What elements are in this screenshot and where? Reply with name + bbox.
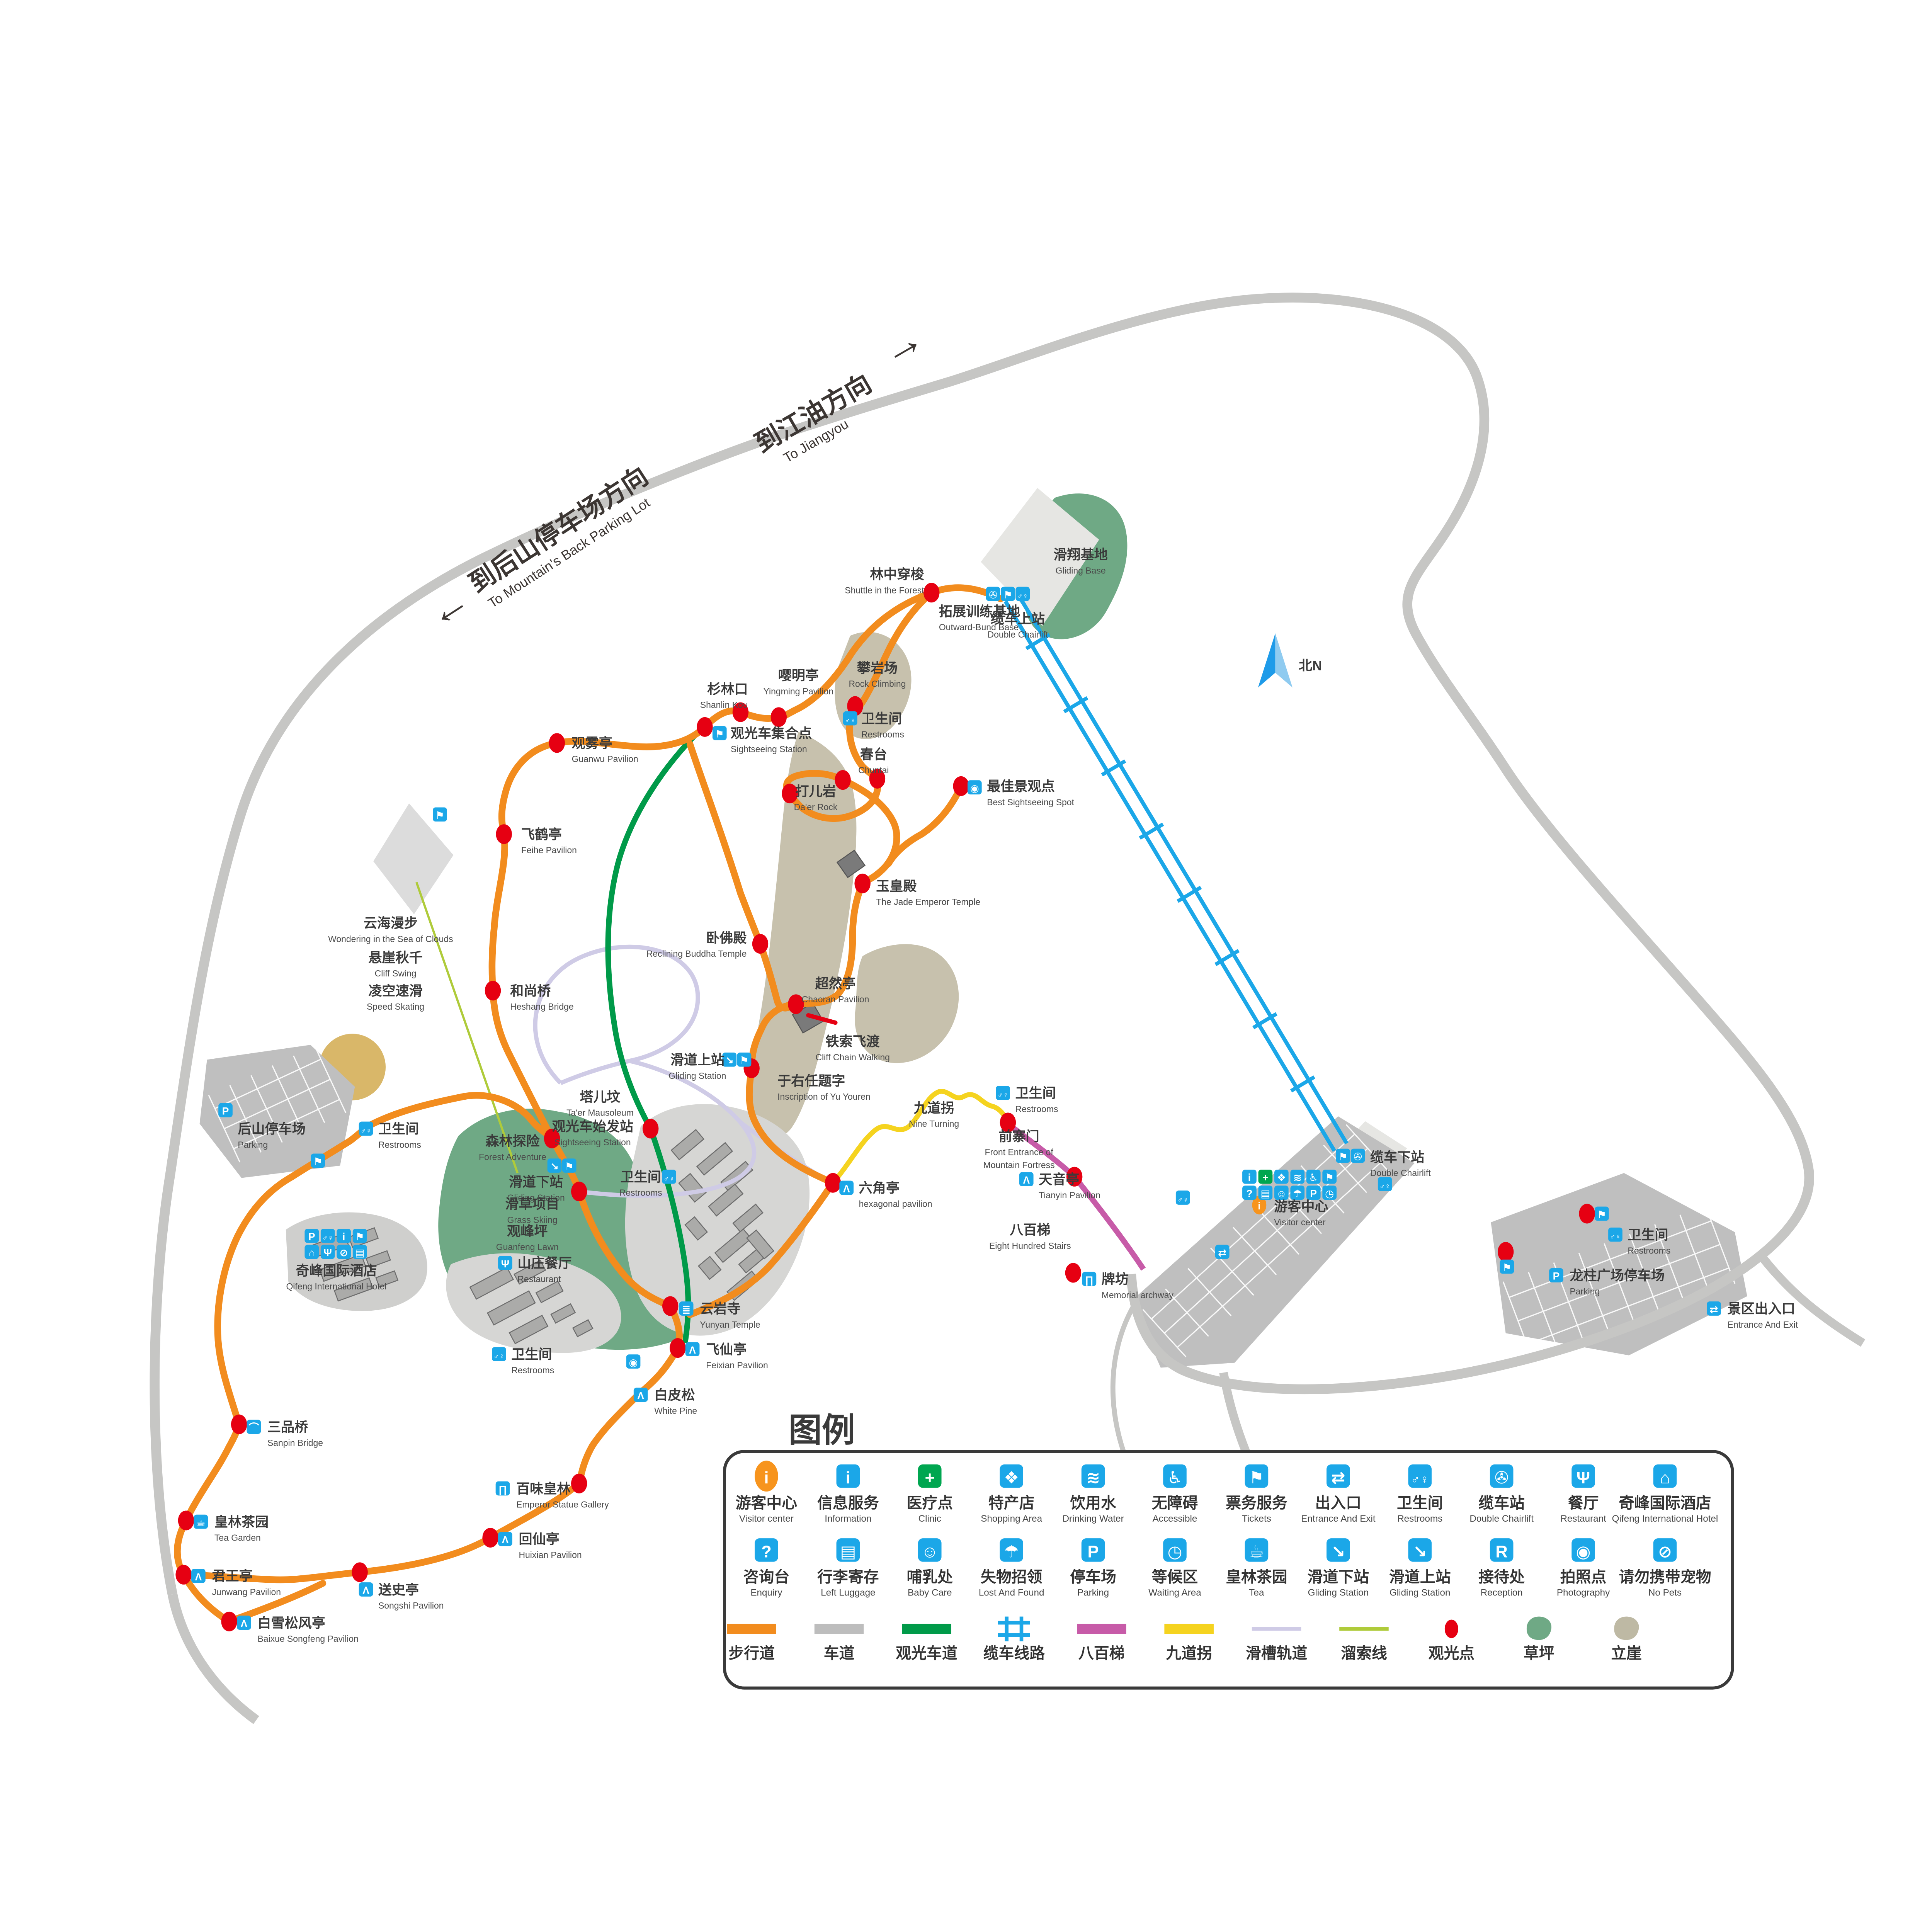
poi-zh-label: 缆车下站 xyxy=(1370,1150,1424,1165)
poi-en-label: The Jade Emperor Temple xyxy=(876,897,980,907)
enquiry-glyph: ? xyxy=(761,1543,772,1561)
poi-en-label: Nine Turning xyxy=(909,1119,959,1129)
poi-zh-label: 打儿岩 xyxy=(795,784,836,799)
poi-en-label: Sanpin Bridge xyxy=(267,1438,323,1448)
information-icon: i xyxy=(337,1229,351,1243)
sightseeing-spot-dot xyxy=(175,1565,191,1585)
poi-zh-label: 百味皇林 xyxy=(516,1481,570,1497)
legend-facility-zh: 滑道上站 xyxy=(1389,1568,1451,1585)
exit-icon: ⇄ xyxy=(1327,1464,1350,1488)
sightseeing-glyph: ⚑ xyxy=(740,1055,749,1066)
entrance-branch-road xyxy=(1762,1257,1863,1343)
water-icon: ≋ xyxy=(1290,1170,1304,1184)
restaurant-icon: Ψ xyxy=(1571,1464,1595,1488)
poi-label: 游客中心Visitor center xyxy=(1274,1199,1328,1228)
restrooms-glyph: ♂♀ xyxy=(1610,1233,1621,1241)
reception-icon: R xyxy=(1490,1538,1514,1562)
poi-label: 玉皇殿The Jade Emperor Temple xyxy=(876,879,980,907)
legend-facility-zh: 哺乳处 xyxy=(906,1568,953,1585)
restrooms-glyph: ♂♀ xyxy=(1411,1472,1429,1486)
poi-en-label: Entrance And Exit xyxy=(1728,1320,1798,1330)
legend-facility-zh: 请勿携带宠物 xyxy=(1619,1568,1711,1585)
poi-zh-label: 奇峰国际酒店 xyxy=(296,1263,377,1278)
parking-icon: P xyxy=(218,1103,233,1117)
poi-zh-label: 后山停车场 xyxy=(238,1122,305,1137)
sightseeing-spot-dot xyxy=(752,934,768,954)
restrooms-icon: ♂♀ xyxy=(1408,1464,1432,1488)
poi-en-label: Parking xyxy=(1570,1286,1600,1296)
poi-en2-label: Mountain Fortress xyxy=(983,1160,1055,1170)
poi-en-label: Forest Adventure xyxy=(479,1152,546,1162)
baby-glyph: ☺ xyxy=(1276,1188,1287,1199)
luggage-icon: ▤ xyxy=(1259,1185,1273,1200)
pavilion-glyph: Λ xyxy=(502,1534,509,1546)
poi-en-label: Heshang Bridge xyxy=(510,1002,574,1012)
archway-glyph: ∏ xyxy=(498,1483,507,1495)
chairlift-glyph: ✇ xyxy=(1354,1151,1362,1162)
glide-glyph: ↘ xyxy=(1331,1543,1345,1561)
tickets-icon: ⚑ xyxy=(1500,1260,1514,1274)
poi-zh-label: 凌空速滑 xyxy=(368,984,422,999)
poi-en-label: Visitor center xyxy=(1274,1217,1326,1227)
legend-facility-zh: 信息服务 xyxy=(817,1495,879,1512)
legend-facility-en: Waiting Area xyxy=(1148,1587,1201,1598)
lostfound-icon: ☂ xyxy=(1000,1538,1023,1562)
poi-zh-label: 嘤明亭 xyxy=(778,668,819,683)
information-glyph: i xyxy=(846,1469,850,1487)
chairlift-icon: ✇ xyxy=(1490,1464,1514,1488)
chairlift-icon: ✇ xyxy=(1351,1149,1365,1163)
poi-en-label: Shuttle in the Forest xyxy=(845,585,924,595)
poi-en-label: Tianyin Pavilion xyxy=(1039,1190,1100,1200)
shopping-icon: ❖ xyxy=(1274,1170,1289,1184)
scenic-area-map: ✇⚑♂♀♂♀⚑◉↘⚑♂♀P♂♀Λ↘⚑Λ♂♀i⚑✇∏Ψ≣♂♀ΛΛ⌒∏☕ΛΛΛΛP♂… xyxy=(0,0,1932,1932)
restaurant-icon: Ψ xyxy=(498,1256,512,1270)
tickets-icon: ⚑ xyxy=(1322,1170,1337,1184)
poi-label: 观光车始发站Sightseeing Station xyxy=(552,1119,633,1147)
poi-zh-label: 前寨门 xyxy=(999,1129,1039,1144)
sightseeing-spot-dot xyxy=(571,1474,587,1493)
poi-en-label: Huixian Pavilion xyxy=(519,1550,582,1560)
legend-facility-en: Accessible xyxy=(1153,1514,1197,1524)
restrooms-glyph: ♂♀ xyxy=(1017,592,1028,600)
luggage-glyph: ▤ xyxy=(355,1247,365,1259)
poi-en-label: Qifeng International Hotel xyxy=(286,1281,386,1291)
legend-facility-en: Left Luggage xyxy=(821,1587,875,1598)
legend-line-zh: 车道 xyxy=(824,1645,855,1662)
sightseeing-spot-dot xyxy=(923,583,939,602)
luggage-icon: ▤ xyxy=(837,1538,860,1562)
poi-en-label: Da'er Rock xyxy=(794,802,838,812)
poi-zh-label: 六角亭 xyxy=(859,1181,900,1196)
sightseeing-spot-dot xyxy=(771,707,787,727)
archway-icon: ∏ xyxy=(496,1481,510,1496)
poi-label: 卫生间Restrooms xyxy=(1628,1228,1670,1256)
legend-facility-en: Restaurant xyxy=(1560,1514,1606,1524)
poi-label: 观雾亭Guanwu Pavilion xyxy=(572,736,638,764)
legend-facility-en: Baby Care xyxy=(908,1587,952,1598)
poi-zh-label: 超然亭 xyxy=(815,976,855,991)
poi-en-label: Tea Garden xyxy=(214,1533,261,1543)
poi-label: 百味皇林Emperor Statue Gallery xyxy=(516,1481,609,1510)
legend-line-zh: 观光车道 xyxy=(896,1645,957,1662)
accessible-icon: ♿ xyxy=(1306,1170,1321,1184)
legend-line-zh: 缆车线路 xyxy=(983,1645,1045,1662)
cable-car-line xyxy=(1005,594,1347,1151)
poi-zh-label: 八百梯 xyxy=(1010,1223,1050,1238)
legend-facility-zh: 皇林茶园 xyxy=(1226,1568,1287,1585)
poi-en-label: Parking xyxy=(238,1139,268,1150)
pavilion-glyph: Λ xyxy=(1023,1174,1030,1186)
poi-zh-label: 于右任题字 xyxy=(777,1073,845,1088)
walking-branch-bestspot xyxy=(888,786,961,864)
poi-zh-label: 滑道上站 xyxy=(670,1053,724,1068)
direction-back-parking-zh: 到后山停车场方向 xyxy=(464,461,653,599)
poi-en-label: Wondering in the Sea of Clouds xyxy=(328,934,453,944)
poi-en-label: Emperor Statue Gallery xyxy=(516,1499,609,1509)
information-icon: i xyxy=(837,1464,860,1488)
tickets-glyph: ⚑ xyxy=(1325,1172,1334,1184)
poi-zh-label: 游客中心 xyxy=(1274,1199,1328,1214)
legend-facility-zh: 拍照点 xyxy=(1560,1568,1607,1585)
poi-zh-label: 观雾亭 xyxy=(572,736,612,751)
sightseeing-glyph: ⚑ xyxy=(313,1156,323,1167)
sightseeing-spot-dot xyxy=(231,1415,247,1434)
luggage-glyph: ▤ xyxy=(1260,1188,1270,1199)
waiting-glyph: ◷ xyxy=(1325,1188,1334,1199)
pavilion-icon: Λ xyxy=(839,1181,854,1195)
restrooms-icon: ♂♀ xyxy=(996,1086,1010,1100)
legend: 图例 i游客中心Visitor centeri信息服务Information+医… xyxy=(724,1412,1732,1688)
parking-glyph: P xyxy=(1088,1543,1099,1561)
direction-back-parking: ← 到后山停车场方向 To Mountain’s Back Parking Lo… xyxy=(418,457,663,642)
legend-facility-zh: 卫生间 xyxy=(1397,1495,1443,1512)
legend-facility-zh: 票务服务 xyxy=(1226,1495,1287,1512)
poi-en-label: Feixian Pavilion xyxy=(706,1360,768,1370)
poi-zh-label: 悬崖秋千 xyxy=(368,950,422,965)
poi-label: 卫生间Restrooms xyxy=(1015,1086,1058,1114)
poi-label: 攀岩场Rock Climbing xyxy=(849,661,906,689)
poi-zh-label: 山庄餐厅 xyxy=(517,1256,571,1271)
legend-facility-en: Visitor center xyxy=(739,1514,794,1524)
poi-zh-label: 天音亭 xyxy=(1039,1172,1079,1187)
poi-label: 春台Chuntai xyxy=(858,747,889,775)
poi-en-label: Guanfeng Lawn xyxy=(496,1242,559,1252)
poi-label: 凌空速滑Speed Skating xyxy=(367,984,424,1012)
parking-icon: P xyxy=(304,1229,319,1243)
poi-zh-label: 三品桥 xyxy=(267,1420,308,1435)
poi-zh-label: 最佳景观点 xyxy=(987,779,1054,794)
restrooms-icon: ♂♀ xyxy=(1378,1177,1392,1191)
legend-line-zh: 滑槽轨道 xyxy=(1246,1645,1308,1662)
sightseeing-icon: ⚑ xyxy=(433,807,447,821)
clinic-icon: + xyxy=(1259,1170,1273,1184)
visitor-glyph: i xyxy=(1258,1200,1260,1212)
poi-en-label: Yingming Pavilion xyxy=(764,686,833,696)
nopets-icon: ⊘ xyxy=(1653,1538,1677,1562)
poi-zh-label: 君王亭 xyxy=(212,1569,252,1584)
sightseeing-glyph: ⚑ xyxy=(565,1161,574,1172)
baby-glyph: ☺ xyxy=(921,1543,939,1561)
tickets-glyph: ⚑ xyxy=(355,1231,364,1243)
poi-en-label: Outward-Bund Base xyxy=(939,622,1019,632)
restrooms-icon: ♂♀ xyxy=(1176,1190,1190,1205)
sightseeing-spot-dot xyxy=(835,770,850,790)
photo-glyph: ◉ xyxy=(629,1357,638,1368)
poi-label: 观光车集合点Sightseeing Station xyxy=(731,726,812,754)
poi-zh-label: 白皮松 xyxy=(654,1388,695,1403)
poi-en-label: Inscription of Yu Youren xyxy=(777,1092,871,1102)
temple-icon: ≣ xyxy=(679,1301,694,1316)
poi-label: 前寨门Front Entrance ofMountain Fortress xyxy=(983,1129,1055,1170)
restrooms-glyph: ♂♀ xyxy=(1177,1196,1189,1204)
restaurant-glyph: Ψ xyxy=(501,1258,509,1270)
poi-label: 滑翔基地Gliding Base xyxy=(1053,548,1107,576)
legend-facility-en: Restrooms xyxy=(1397,1514,1442,1524)
luggage-icon: ▤ xyxy=(353,1245,367,1259)
sightseeing-spot-dot xyxy=(178,1510,194,1530)
legend-facility-zh: 医疗点 xyxy=(906,1495,953,1512)
legend-facility-zh: 接待处 xyxy=(1478,1568,1525,1585)
poi-zh-label: 攀岩场 xyxy=(857,661,898,676)
poi-label: 卫生间Restrooms xyxy=(619,1170,662,1198)
legend-facility-en: Drinking Water xyxy=(1062,1514,1124,1524)
legend-facility-en: No Pets xyxy=(1648,1587,1682,1598)
water-icon: ≋ xyxy=(1082,1464,1105,1488)
poi-en-label: Rock Climbing xyxy=(849,679,906,689)
poi-en-label: Reclining Buddha Temple xyxy=(646,949,747,959)
lostfound-glyph: ☂ xyxy=(1004,1543,1019,1561)
poi-zh-label: 云海漫步 xyxy=(364,916,418,931)
poi-en-label: Double Chairlift xyxy=(1370,1168,1431,1178)
tea-glyph: ☕ xyxy=(196,1517,206,1529)
poi-label: 九道拐Nine Turning xyxy=(909,1100,959,1129)
poi-zh-label: 和尚桥 xyxy=(510,984,551,999)
legend-line-zh: 八百梯 xyxy=(1078,1645,1125,1662)
baby-icon: ☺ xyxy=(918,1538,942,1562)
legend-line-zh: 步行道 xyxy=(728,1645,775,1662)
pavilion-glyph: Λ xyxy=(843,1183,850,1194)
poi-label: 悬崖秋千Cliff Swing xyxy=(368,950,422,978)
legend-facility-en: Reception xyxy=(1481,1587,1523,1598)
poi-zh-label: 皇林茶园 xyxy=(214,1515,269,1530)
poi-label: 飞仙亭Feixian Pavilion xyxy=(706,1342,768,1370)
exit-icon: ⇄ xyxy=(1707,1301,1721,1316)
poi-zh-label: 林中穿梭 xyxy=(870,567,924,582)
sightseeing-spot-dot xyxy=(643,1119,658,1138)
cable-line-b xyxy=(1018,594,1347,1143)
restrooms-icon: ♂♀ xyxy=(359,1122,373,1136)
poi-zh-label: 飞鹤亭 xyxy=(521,827,562,842)
poi-en-label: Gliding Base xyxy=(1056,565,1106,575)
restrooms-glyph: ♂♀ xyxy=(493,1352,505,1361)
poi-zh-label: 卫生间 xyxy=(621,1170,661,1185)
restrooms-icon: ♂♀ xyxy=(492,1347,506,1361)
poi-en-label: Sightseeing Station xyxy=(554,1137,631,1147)
photo-glyph: ◉ xyxy=(1576,1543,1591,1561)
poi-zh-label: 塔儿坟 xyxy=(580,1090,620,1105)
north-compass: 北N xyxy=(1258,633,1322,687)
tea-icon: ☕ xyxy=(194,1515,208,1529)
clinic-glyph: + xyxy=(1262,1172,1268,1184)
legend-facility-en: Lost And Found xyxy=(979,1587,1044,1598)
poi-en-label: Restrooms xyxy=(378,1139,421,1150)
sightseeing-spot-dot xyxy=(549,733,565,753)
restrooms-icon: ♂♀ xyxy=(1608,1228,1622,1242)
poi-zh-label: 送史亭 xyxy=(378,1582,419,1597)
exit-glyph: ⇄ xyxy=(1331,1469,1345,1487)
parking-icon: P xyxy=(1306,1185,1321,1200)
poi-en-label: Cliff Swing xyxy=(375,968,417,978)
restrooms-glyph: ♂♀ xyxy=(361,1127,372,1135)
poi-label: 林中穿梭Shuttle in the Forest xyxy=(845,567,924,595)
enquiry-icon: ? xyxy=(755,1538,778,1562)
restaurant-icon: Ψ xyxy=(321,1245,335,1259)
poi-en-label: Junwang Pavilion xyxy=(212,1587,281,1597)
poi-zh-label: 滑道下站 xyxy=(509,1175,563,1190)
parking-glyph: P xyxy=(1310,1188,1317,1199)
temple-glyph: ≣ xyxy=(682,1304,690,1315)
sightseeing-icon: ⚑ xyxy=(311,1153,325,1168)
poi-zh-label: 卫生间 xyxy=(378,1122,419,1137)
information-glyph: i xyxy=(1248,1172,1251,1184)
shopping-glyph: ❖ xyxy=(1004,1469,1019,1487)
waiting-icon: ◷ xyxy=(1163,1538,1187,1562)
poi-en-label: Baixue Songfeng Pavilion xyxy=(257,1634,358,1644)
parking-glyph: P xyxy=(222,1105,229,1117)
poi-label: 景区出入口Entrance And Exit xyxy=(1728,1301,1798,1330)
legend-facility-zh: 等候区 xyxy=(1152,1568,1198,1585)
poi-en-label: Restrooms xyxy=(511,1365,554,1375)
photo-glyph: ◉ xyxy=(970,782,979,794)
waiting-icon: ◷ xyxy=(1322,1185,1337,1200)
clinic-icon: + xyxy=(918,1464,942,1488)
archway-glyph: ∏ xyxy=(1085,1274,1094,1286)
legend-facility-en: Shopping Area xyxy=(981,1514,1042,1524)
pavilion-icon: Λ xyxy=(237,1616,251,1630)
legend-line-zh: 溜索线 xyxy=(1341,1645,1387,1662)
poi-zh-label: 春台 xyxy=(860,747,887,762)
legend-facility-zh: 饮用水 xyxy=(1070,1495,1116,1512)
legend-facility-zh: 特产店 xyxy=(988,1495,1035,1512)
legend-line-zh: 九道拐 xyxy=(1166,1645,1212,1662)
pavilion-icon: Λ xyxy=(191,1569,206,1583)
poi-en-label: Restrooms xyxy=(619,1188,662,1198)
poi-label: 八百梯Eight Hundred Stairs xyxy=(989,1223,1071,1251)
poi-en-label: Restrooms xyxy=(1628,1246,1670,1256)
enquiry-icon: ? xyxy=(1242,1185,1257,1200)
nopets-glyph: ⊘ xyxy=(340,1247,348,1259)
restrooms-icon: ♂♀ xyxy=(1015,587,1030,601)
sightseeing-icon: ⚑ xyxy=(562,1158,577,1173)
poi-en-label: Restrooms xyxy=(861,729,904,739)
pavilion-icon: Λ xyxy=(1019,1172,1034,1186)
poi-en-label: Chuntai xyxy=(858,765,889,775)
parking-glyph: P xyxy=(1553,1270,1560,1282)
parking-glyph: P xyxy=(308,1231,315,1243)
pavilion-icon: Λ xyxy=(634,1388,648,1402)
tickets-icon: ⚑ xyxy=(1595,1207,1609,1221)
poi-zh-label: 卧佛殿 xyxy=(706,930,747,946)
legend-facility-en: Gliding Station xyxy=(1308,1587,1369,1598)
compass-needle-left xyxy=(1258,633,1276,687)
legend-line-zh: 草坪 xyxy=(1524,1645,1554,1662)
legend-facility-en: Tickets xyxy=(1242,1514,1271,1524)
exit-icon: ⇄ xyxy=(1215,1245,1230,1259)
poi-zh-label: 回仙亭 xyxy=(519,1532,559,1547)
sightseeing-icon: ⚑ xyxy=(737,1053,752,1067)
tickets-icon: ⚑ xyxy=(1245,1464,1269,1488)
glide-icon: ↘ xyxy=(1327,1538,1350,1562)
legend-line-zh: 观光点 xyxy=(1429,1645,1475,1662)
legend-facility-zh: 停车场 xyxy=(1070,1568,1116,1585)
bridge-icon: ⌒ xyxy=(247,1420,261,1434)
legend-facility-zh: 游客中心 xyxy=(736,1495,798,1512)
poi-label: 嘤明亭Yingming Pavilion xyxy=(764,668,833,696)
legend-facility-en: Double Chairlift xyxy=(1469,1514,1534,1524)
hotel-icon: ⌂ xyxy=(304,1245,319,1259)
poi-label: 于右任题字Inscription of Yu Youren xyxy=(777,1073,871,1102)
pavilion-icon: Λ xyxy=(498,1532,512,1546)
visitor-glyph: i xyxy=(764,1469,769,1487)
sightseeing-spot-dot xyxy=(662,1296,678,1316)
poi-zh-label: 飞仙亭 xyxy=(706,1342,747,1357)
poi-label: 打儿岩Da'er Rock xyxy=(794,784,838,812)
poi-en-label: Yunyan Temple xyxy=(700,1320,760,1330)
parking-icon: P xyxy=(1082,1538,1105,1562)
glide-glyph: ↘ xyxy=(1413,1543,1427,1561)
exit-glyph: ⇄ xyxy=(1218,1247,1226,1259)
tickets-glyph: ⚑ xyxy=(1502,1262,1512,1273)
restaurant-glyph: Ψ xyxy=(324,1247,332,1259)
photo-icon: ◉ xyxy=(1571,1538,1595,1562)
legend-facility-en: Information xyxy=(825,1514,871,1524)
poi-label: 六角亭hexagonal pavilion xyxy=(859,1181,932,1209)
sightseeing-glyph: ⚑ xyxy=(715,728,724,740)
tickets-glyph: ⚑ xyxy=(1003,589,1013,600)
tickets-glyph: ⚑ xyxy=(1597,1209,1607,1220)
nopets-glyph: ⊘ xyxy=(1658,1543,1672,1561)
poi-label: 云海漫步Wondering in the Sea of Clouds xyxy=(328,916,453,944)
poi-en-label: Songshi Pavilion xyxy=(378,1600,444,1611)
chairlift-glyph: ✇ xyxy=(989,589,997,600)
hotel-glyph: ⌂ xyxy=(309,1247,315,1259)
legend-facility-zh: 奇峰国际酒店 xyxy=(1619,1495,1711,1512)
poi-label: 滑道上站Gliding Station xyxy=(668,1053,726,1081)
sightseeing-spot-dot xyxy=(1498,1242,1514,1262)
poi-en-label: Shanlin Kou xyxy=(700,700,748,710)
bridge-glyph: ⌒ xyxy=(249,1422,259,1434)
poi-label: 白雪松风亭Baixue Songfeng Pavilion xyxy=(257,1616,358,1644)
poi-label: 送史亭Songshi Pavilion xyxy=(378,1582,444,1611)
legend-facility-zh: 餐厅 xyxy=(1568,1495,1599,1512)
poi-label: 塔儿坟Ta'er Mausoleum xyxy=(566,1090,634,1118)
arrow-right-icon: → xyxy=(872,313,932,375)
information-glyph: i xyxy=(342,1231,345,1243)
poi-label: 铁索飞渡Cliff Chain Walking xyxy=(815,1034,890,1062)
accessible-glyph: ♿ xyxy=(1309,1172,1318,1184)
pavilion-glyph: Λ xyxy=(362,1585,369,1596)
sightseeing-spot-dot xyxy=(352,1562,367,1582)
poi-en-label: Eight Hundred Stairs xyxy=(989,1241,1071,1251)
legend-facility-en: Tea xyxy=(1249,1587,1264,1598)
sightseeing-spot-dot xyxy=(854,874,870,893)
water-glyph: ≋ xyxy=(1293,1172,1302,1184)
sightseeing-icon: ⚑ xyxy=(713,726,727,740)
poi-label: 和尚桥Heshang Bridge xyxy=(510,984,574,1012)
legend-title: 图例 xyxy=(789,1412,855,1449)
poi-en-label: Guanwu Pavilion xyxy=(572,754,638,764)
